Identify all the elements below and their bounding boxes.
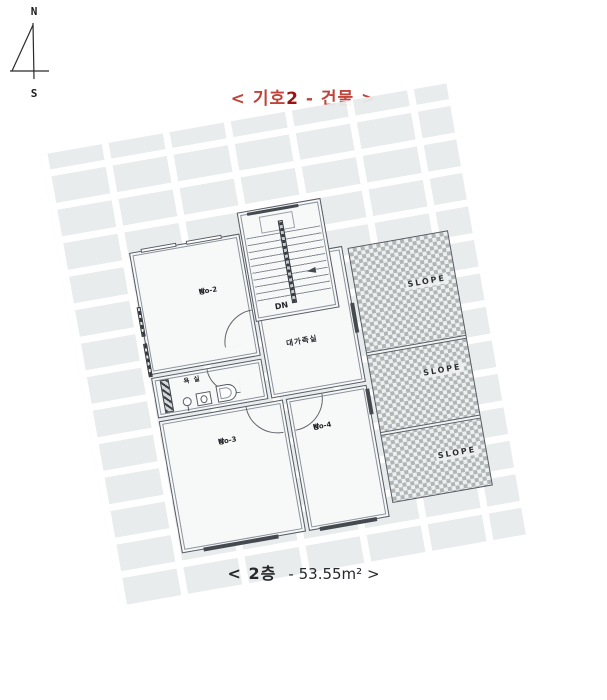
slope-divider: [381, 415, 480, 436]
slope-divider: [367, 335, 466, 356]
room-no3: [159, 400, 306, 554]
floor-area: - 53.55m² >: [288, 565, 379, 583]
floor-plan: SLOPE SLOPE SLOPE DN 방 No-2 방 No-3 방: [129, 216, 391, 553]
compass-needle-icon: [8, 19, 60, 83]
slope-label: SLOPE: [356, 273, 454, 290]
slope-label: SLOPE: [386, 444, 484, 461]
slope-label: SLOPE: [372, 361, 470, 378]
title-prefix: < 기호: [231, 89, 286, 109]
floor-number: < 2층: [227, 564, 276, 583]
title-number: 2: [286, 89, 299, 109]
page-title: < 기호2 - 건물 >: [0, 84, 607, 109]
floor-area-caption: < 2층 - 53.55m² >: [0, 560, 607, 584]
toilet-icon: [195, 391, 212, 406]
compass-north-label: N: [8, 6, 60, 17]
